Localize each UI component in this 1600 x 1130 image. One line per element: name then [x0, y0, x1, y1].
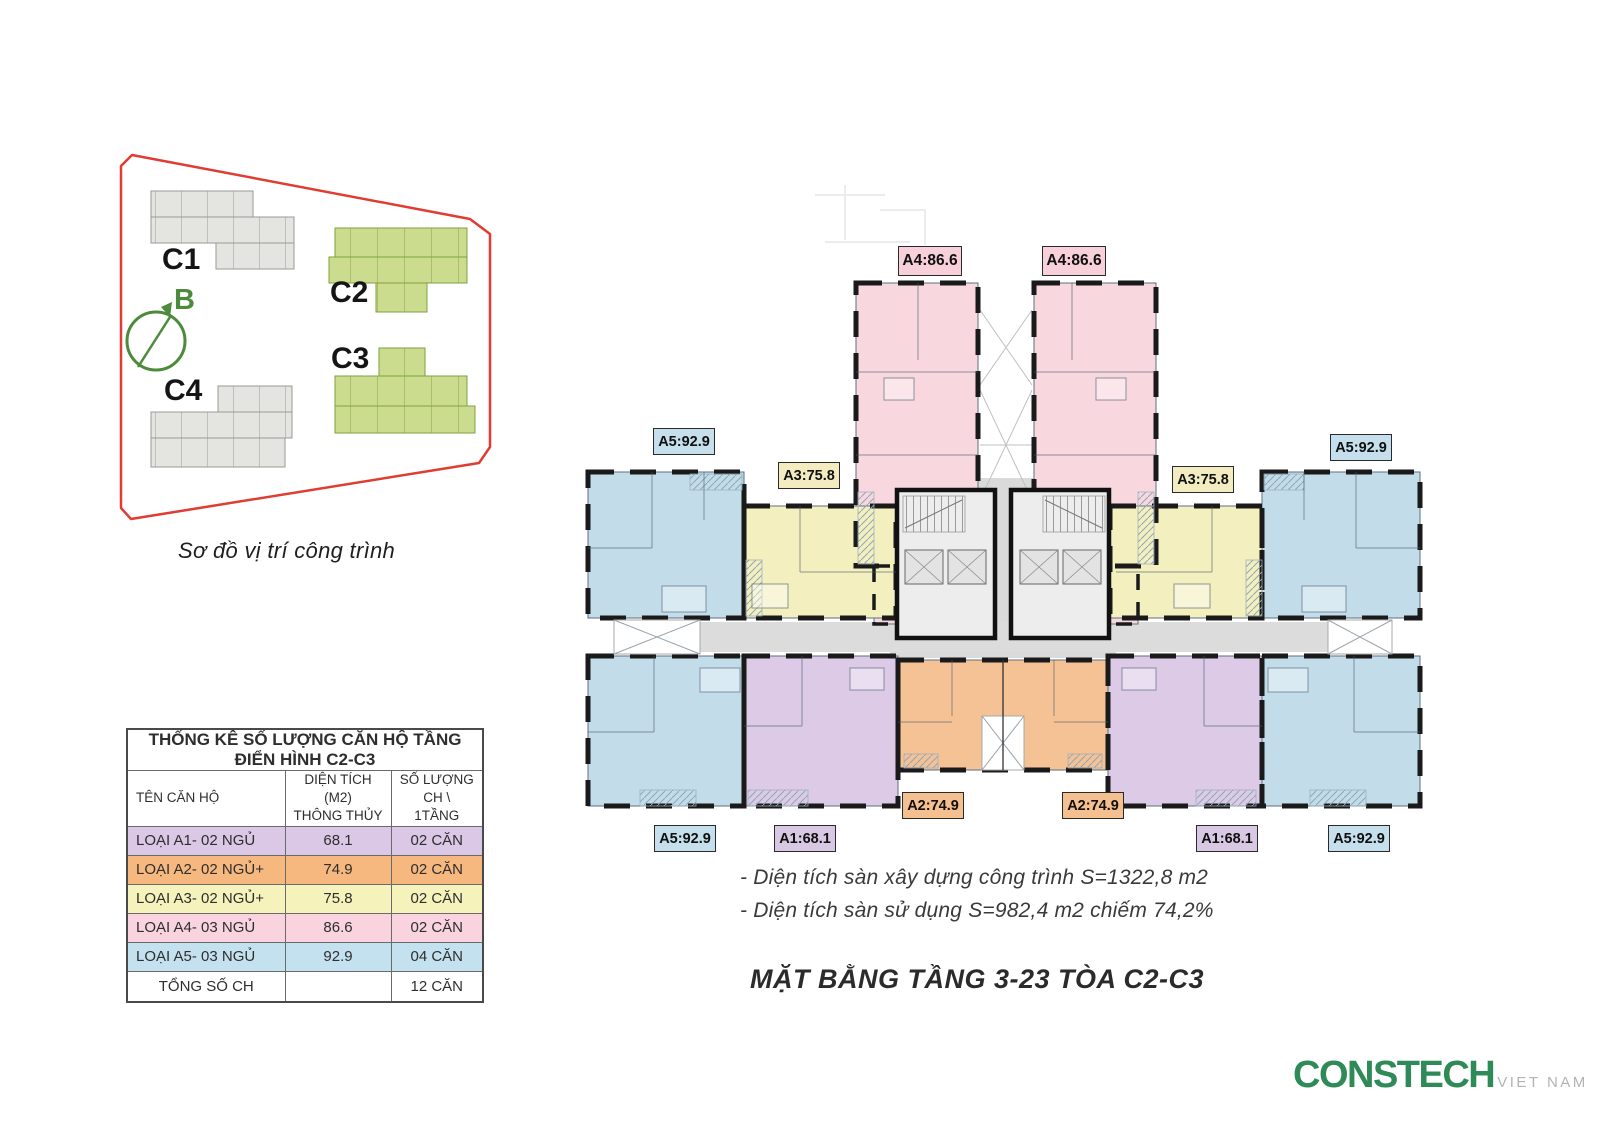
area-note-2: - Diện tích sàn sử dụng S=982,4 m2 chiếm… [740, 899, 1214, 923]
col-header-area: DIỆN TÍCH (M2) THÔNG THỦY [285, 771, 391, 827]
constech-logo: CONSTECH VIET NAM [1293, 1056, 1588, 1094]
unit-label-a3-left: A3:75.8 [778, 462, 840, 489]
table-row-a2: LOẠI A2- 02 NGỦ+74.9 02 CĂN [127, 855, 483, 884]
unit-stats-table: THỐNG KÊ SỐ LƯỢNG CĂN HỘ TẦNG ĐIỂN HÌNH … [126, 728, 484, 1003]
col-header-name: TÊN CĂN HỘ [127, 771, 285, 827]
site-building-label-c3: C3 [331, 344, 369, 374]
floor-plan-caption: MẶT BẰNG TẦNG 3-23 TÒA C2-C3 [750, 964, 1204, 995]
unit-label-a5-bottom-left: A5:92.9 [654, 825, 716, 852]
table-header-row: TÊN CĂN HỘ DIỆN TÍCH (M2) THÔNG THỦY SỐ … [127, 771, 483, 827]
table-title: THỐNG KÊ SỐ LƯỢNG CĂN HỘ TẦNG ĐIỂN HÌNH … [127, 729, 483, 771]
unit-label-a5-bottom-right: A5:92.9 [1328, 825, 1390, 852]
unit-label-a1-right: A1:68.1 [1196, 825, 1258, 852]
unit-label-a3-right: A3:75.8 [1172, 466, 1234, 493]
tower-gap-bridge [980, 310, 1032, 500]
logo-region-text: VIET NAM [1497, 1074, 1588, 1094]
table-row-a1: LOẠI A1- 02 NGỦ68.1 02 CĂN [127, 826, 483, 855]
area-note-1: - Diện tích sàn xây dựng công trình S=13… [740, 866, 1208, 890]
floor-plan-drawing [570, 170, 1430, 870]
table-row-total: TỔNG SỐ CH 12 CĂN [127, 971, 483, 1002]
site-building-label-c4: C4 [164, 376, 202, 406]
unit-label-a5-top-left: A5:92.9 [653, 428, 715, 455]
site-building-label-c2: C2 [330, 278, 368, 308]
unit-label-a5-top-right: A5:92.9 [1330, 434, 1392, 461]
unit-label-a2-right: A2:74.9 [1062, 792, 1124, 819]
page: C1 B C2 C3 C4 Sơ đồ vị trí công trình TH… [0, 0, 1600, 1130]
unit-label-a4-left: A4:86.6 [898, 246, 962, 276]
table-row-a3: LOẠI A3- 02 NGỦ+75.8 02 CĂN [127, 884, 483, 913]
col-header-count: SỐ LƯỢNG CH \ 1TẦNG [391, 771, 483, 827]
site-building-label-c1: C1 [162, 245, 200, 275]
site-diagram-caption: Sơ đồ vị trí công trình [178, 538, 418, 564]
logo-brand-text: CONSTECH [1293, 1056, 1494, 1094]
table-row-a5: LOẠI A5- 03 NGỦ92.9 04 CĂN [127, 942, 483, 971]
unit-label-a1-left: A1:68.1 [774, 825, 836, 852]
compass-north-label: B [174, 286, 195, 315]
ghost-sketch [815, 185, 925, 245]
unit-label-a4-right: A4:86.6 [1042, 246, 1106, 276]
unit-label-a2-left: A2:74.9 [902, 792, 964, 819]
site-location-diagram [90, 135, 520, 565]
table-row-a4: LOẠI A4- 03 NGỦ86.6 02 CĂN [127, 913, 483, 942]
